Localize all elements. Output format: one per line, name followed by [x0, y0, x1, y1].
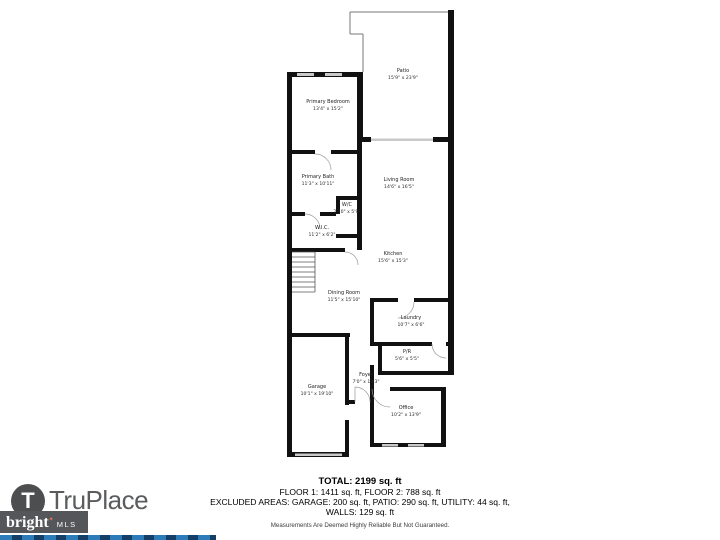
windows-group — [295, 73, 433, 456]
room-dims: 15'6" x 15'3" — [378, 258, 408, 265]
room-label-wic: W.I.C. 11'2" x 6'2" — [308, 225, 335, 239]
room-name: W/C — [333, 202, 360, 210]
room-dims: 11'2" x 6'2" — [308, 232, 335, 239]
room-label-patio: Patio 15'9" x 23'9" — [388, 68, 418, 82]
room-name: Garage — [301, 384, 334, 392]
bright-wordmark: bright — [6, 516, 49, 530]
room-dims: 15'9" x 23'9" — [388, 75, 418, 82]
floor-plan-drawing — [0, 0, 720, 540]
room-dims: 13'4" x 15'2" — [306, 106, 350, 113]
room-name: W.I.C. — [308, 225, 335, 233]
room-label-foyer: Foyer 7'0" x 13'3" — [352, 372, 379, 386]
room-name: Kitchen — [378, 251, 408, 259]
room-label-office: Office 10'2" x 13'9" — [391, 405, 421, 419]
room-name: Primary Bath — [302, 174, 335, 182]
bright-star-icon: ✦ — [49, 516, 54, 523]
disclaimer-text: Measurements Are Deemed Highly Reliable … — [0, 522, 720, 530]
stairs-icon — [292, 252, 315, 292]
patio-outline — [350, 12, 451, 72]
room-name: P/R — [395, 349, 419, 357]
room-dims: 7'0" x 13'3" — [352, 379, 379, 386]
room-label-primary-bedroom: Primary Bedroom 13'4" x 15'2" — [306, 99, 350, 113]
room-dims: 2'10" x 5'9" — [333, 209, 360, 216]
room-name: Foyer — [352, 372, 379, 380]
bright-mls-logo: bright ✦ MLS — [0, 511, 88, 533]
room-name: Primary Bedroom — [306, 99, 350, 107]
room-label-garage: Garage 10'1" x 19'10" — [301, 384, 334, 398]
room-name: Living Room — [384, 177, 415, 185]
room-label-pr: P/R 5'6" x 5'5" — [395, 349, 419, 363]
room-label-kitchen: Kitchen 15'6" x 15'3" — [378, 251, 408, 265]
room-dims: 11'5" x 15'10" — [328, 297, 361, 304]
room-label-primary-bath: Primary Bath 11'3" x 10'11" — [302, 174, 335, 188]
door-arcs-group — [305, 154, 446, 407]
room-dims: 10'7" x 6'6" — [397, 322, 424, 329]
room-dims: 11'3" x 10'11" — [302, 181, 335, 188]
bright-mls-label: MLS — [57, 520, 77, 529]
bright-mls-watermark-strip — [0, 535, 216, 540]
room-dims: 14'6" x 16'5" — [384, 184, 415, 191]
room-label-laundry: Laundry 10'7" x 6'6" — [397, 315, 424, 329]
room-label-wc: W/C 2'10" x 5'9" — [333, 202, 360, 216]
room-label-living-room: Living Room 14'6" x 16'5" — [384, 177, 415, 191]
room-label-dining-room: Dining Room 11'5" x 15'10" — [328, 290, 361, 304]
room-name: Laundry — [397, 315, 424, 323]
room-dims: 10'1" x 19'10" — [301, 391, 334, 398]
room-name: Patio — [388, 68, 418, 76]
floor-plan-page: Patio 15'9" x 23'9" Primary Bedroom 13'4… — [0, 0, 720, 540]
room-name: Office — [391, 405, 421, 413]
room-name: Dining Room — [328, 290, 361, 298]
room-dims: 5'6" x 5'5" — [395, 356, 419, 363]
room-dims: 10'2" x 13'9" — [391, 412, 421, 419]
